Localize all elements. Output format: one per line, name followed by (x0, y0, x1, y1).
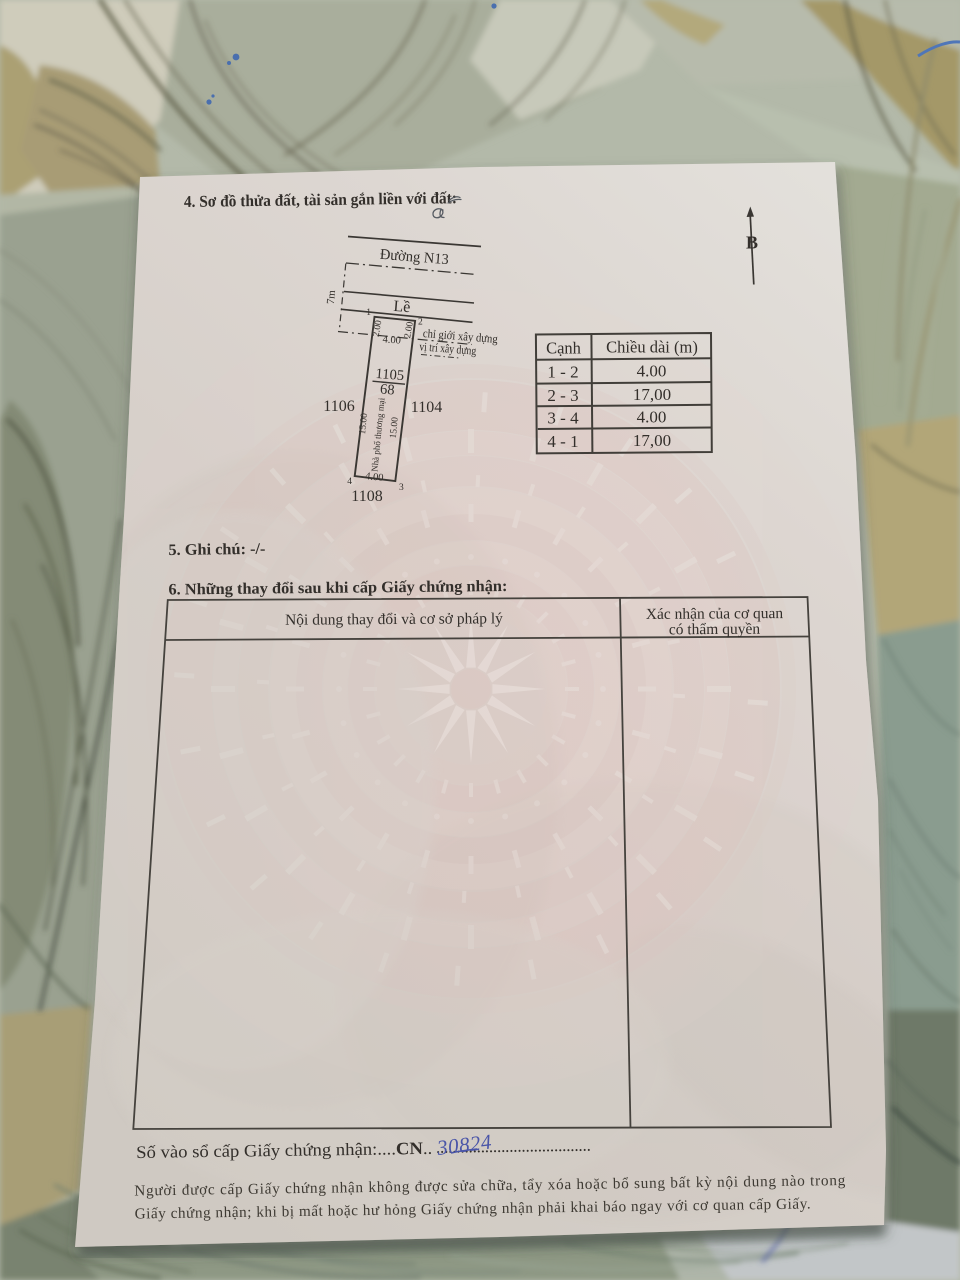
svg-text:B: B (746, 233, 758, 253)
svg-text:15.00: 15.00 (389, 416, 401, 438)
svg-text:4.00: 4.00 (365, 471, 384, 484)
svg-text:6. Những thay đổi sau khi cấp: 6. Những thay đổi sau khi cấp Giấy chứng… (168, 578, 507, 599)
svg-text:68: 68 (379, 381, 395, 398)
svg-text:17,00: 17,00 (633, 385, 671, 404)
svg-text:4.00: 4.00 (382, 334, 401, 346)
svg-text:Số vào sổ cấp Giấy chứng nhận:: Số vào sổ cấp Giấy chứng nhận:....CN.. (136, 1138, 432, 1162)
svg-text:17,00: 17,00 (633, 431, 671, 450)
svg-text:có thẩm quyền: có thẩm quyền (669, 621, 761, 639)
svg-text:Nội dung thay đổi và cơ sở phá: Nội dung thay đổi và cơ sở pháp lý (285, 610, 503, 629)
svg-text:15.00: 15.00 (358, 412, 370, 434)
svg-text:7m: 7m (325, 289, 338, 304)
svg-text:4.00: 4.00 (637, 408, 667, 427)
svg-text:3 - 4: 3 - 4 (547, 409, 579, 428)
svg-text:2 - 3: 2 - 3 (547, 386, 578, 405)
svg-text:1106: 1106 (323, 398, 354, 415)
svg-text:Lề: Lề (393, 298, 411, 316)
svg-text:4.00: 4.00 (637, 362, 667, 381)
svg-text:5. Ghi chú: -/-: 5. Ghi chú: -/- (168, 541, 265, 559)
svg-text:1: 1 (366, 308, 371, 318)
svg-text:Chiều dài (m): Chiều dài (m) (606, 338, 698, 357)
svg-text:4: 4 (347, 477, 352, 487)
svg-text:1104: 1104 (411, 399, 442, 416)
svg-text:4 - 1: 4 - 1 (547, 432, 578, 451)
svg-text:2: 2 (418, 318, 423, 328)
svg-text:4. Sơ đồ thửa đất, tài sản gắn: 4. Sơ đồ thửa đất, tài sản gắn liền với … (184, 188, 457, 211)
svg-text:1 - 2: 1 - 2 (547, 363, 578, 382)
svg-text:1108: 1108 (351, 488, 382, 505)
svg-text:3: 3 (399, 483, 404, 493)
svg-text:Cạnh: Cạnh (546, 339, 582, 358)
